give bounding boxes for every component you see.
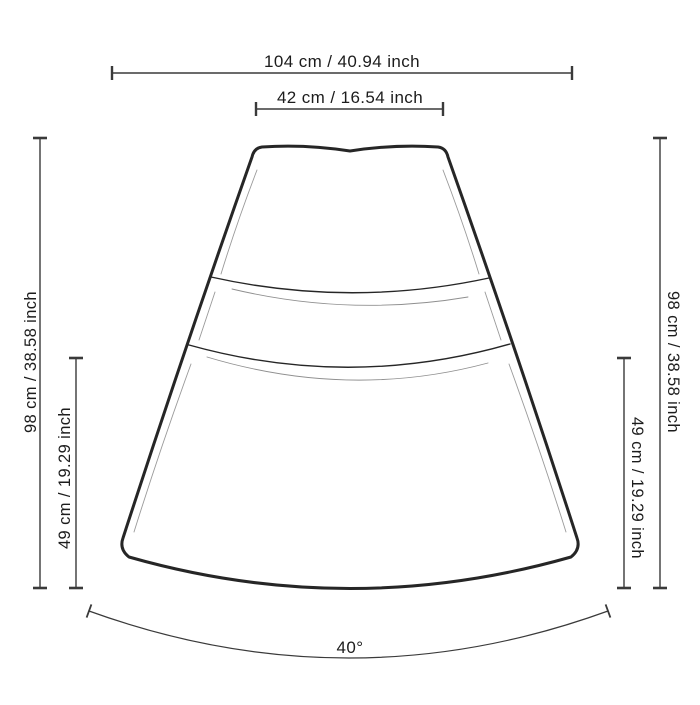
right-partial-height-label: 49 cm / 19.29 inch [628, 417, 646, 559]
left-overall-height-label: 98 cm / 38.58 inch [22, 291, 40, 433]
right-partial-height-dimension: 49 cm / 19.29 inch [617, 358, 646, 588]
dimension-diagram: 104 cm / 40.94 inch 42 cm / 16.54 inch 9… [0, 0, 700, 700]
angle-label: 40° [337, 638, 364, 657]
overall-width-dimension: 104 cm / 40.94 inch [112, 52, 572, 80]
right-overall-height-label: 98 cm / 38.58 inch [664, 291, 682, 433]
left-overall-height-dimension: 98 cm / 38.58 inch [22, 138, 47, 588]
top-width-dimension: 42 cm / 16.54 inch [256, 88, 443, 116]
diagram-canvas: 104 cm / 40.94 inch 42 cm / 16.54 inch 9… [0, 0, 700, 700]
angle-dimension: 40° [87, 604, 611, 658]
overall-width-label: 104 cm / 40.94 inch [264, 52, 420, 71]
left-partial-height-label: 49 cm / 19.29 inch [56, 407, 74, 549]
top-width-label: 42 cm / 16.54 inch [277, 88, 423, 107]
left-partial-height-dimension: 49 cm / 19.29 inch [56, 358, 83, 588]
right-overall-height-dimension: 98 cm / 38.58 inch [653, 138, 682, 588]
product-drawing [122, 146, 578, 588]
